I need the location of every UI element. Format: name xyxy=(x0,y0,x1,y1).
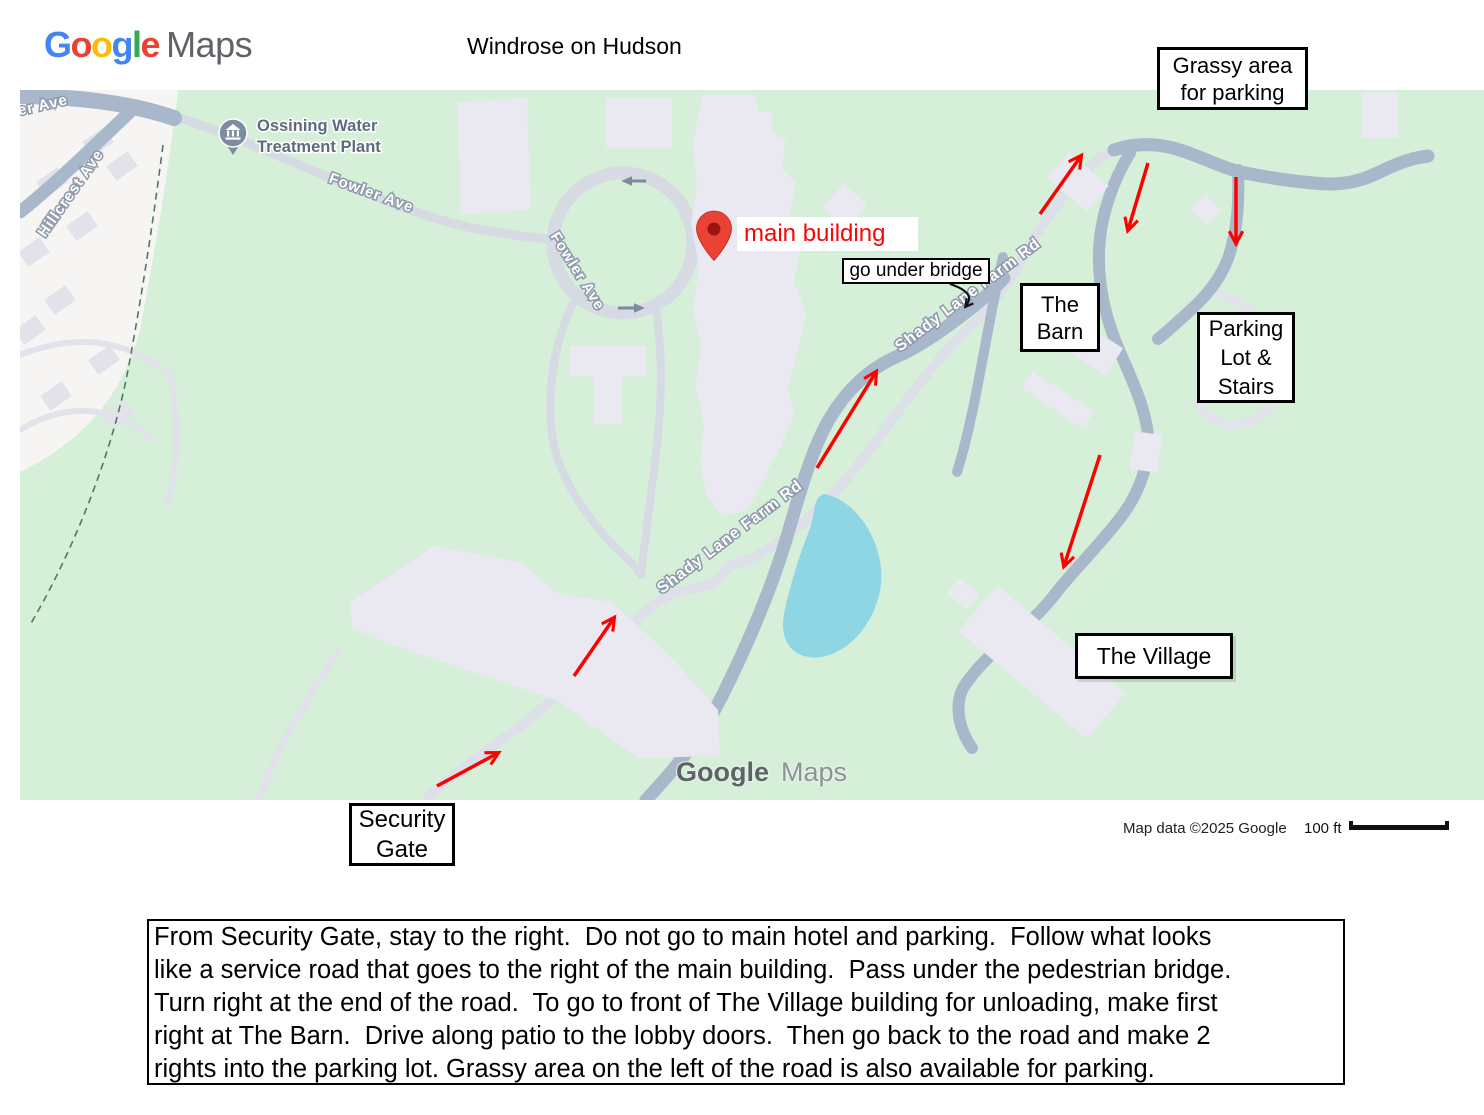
main-building-label: main building xyxy=(737,217,918,251)
watermark-maps: Maps xyxy=(781,757,847,787)
logo-letter: o xyxy=(71,24,92,65)
page-title: Windrose on Hudson xyxy=(467,33,682,60)
logo-letter: o xyxy=(91,24,112,65)
logo-letter: e xyxy=(141,24,160,65)
map-image: Fowler Ave Hillcrest Ave Fowler Ave Fowl… xyxy=(20,90,1484,800)
logo-maps-word: Maps xyxy=(166,24,252,65)
scale-label: 100 ft xyxy=(1304,820,1342,837)
scale-bar xyxy=(1349,821,1449,830)
grassy-area-callout: Grassy area for parking xyxy=(1157,47,1308,110)
google-maps-logo: GoogleMaps xyxy=(44,24,252,66)
watermark-google: Google xyxy=(676,757,769,787)
logo-letter: l xyxy=(132,24,141,65)
logo-letter: G xyxy=(44,24,71,65)
parking-lot-stairs-callout: Parking Lot & Stairs xyxy=(1197,312,1295,403)
poi-label-line2: Treatment Plant xyxy=(257,138,381,156)
flyer-page: GoogleMaps Windrose on Hudson xyxy=(0,0,1484,1115)
go-under-bridge-callout: go under bridge xyxy=(842,258,990,284)
directions-text-box: From Security Gate, stay to the right. D… xyxy=(147,919,1345,1085)
logo-letter: g xyxy=(112,24,133,65)
the-barn-callout: The Barn xyxy=(1020,283,1100,352)
map-attribution: Map data ©2025 Google xyxy=(1123,820,1287,837)
poi-label-line1: Ossining Water xyxy=(257,117,378,135)
security-gate-callout: Security Gate xyxy=(349,803,455,866)
map-canvas: Fowler Ave Hillcrest Ave Fowler Ave Fowl… xyxy=(20,90,1484,800)
the-village-callout: The Village xyxy=(1075,633,1233,679)
